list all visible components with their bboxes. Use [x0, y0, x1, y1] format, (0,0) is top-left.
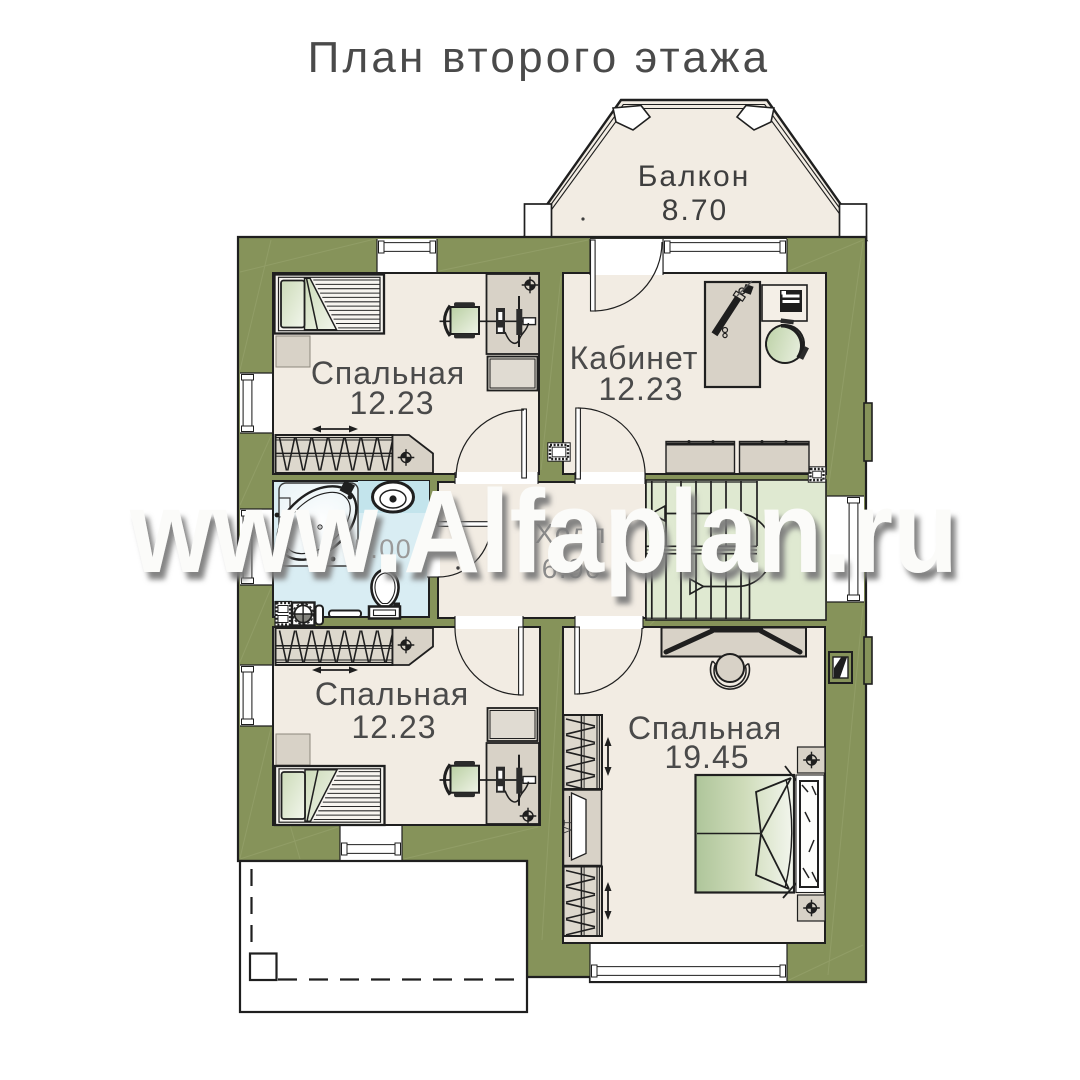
svg-text:Балкон: Балкон	[638, 160, 751, 193]
svg-text:12.23: 12.23	[598, 371, 683, 407]
svg-text:Спальная: Спальная	[315, 676, 469, 712]
svg-text:www.Alfaplan.ru: www.Alfaplan.ru	[129, 466, 958, 598]
svg-text:12.23: 12.23	[349, 385, 434, 421]
svg-text:План второго этажа: План второго этажа	[308, 33, 771, 82]
svg-text:VT: VT	[563, 819, 574, 834]
svg-text:12.23: 12.23	[351, 709, 436, 745]
svg-text:19.45: 19.45	[664, 739, 749, 775]
svg-text:8.70: 8.70	[662, 194, 728, 227]
